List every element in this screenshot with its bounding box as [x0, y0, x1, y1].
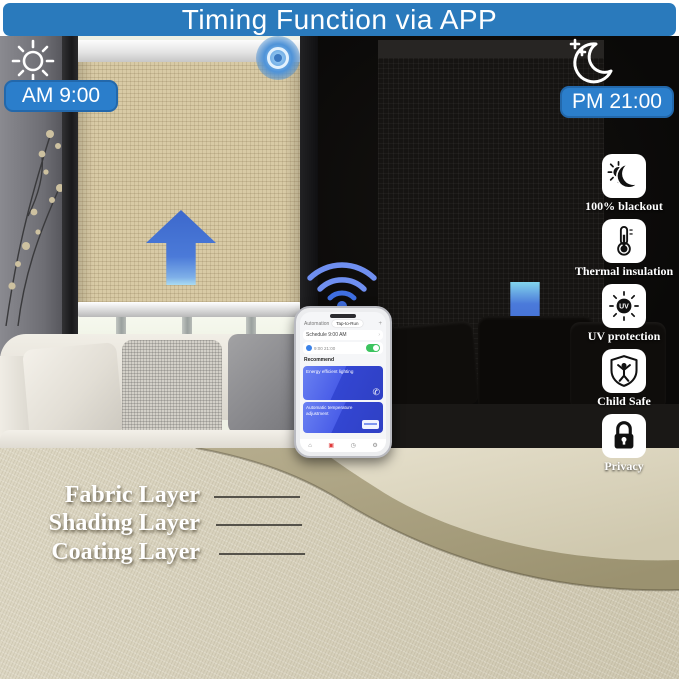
recommend-heading: Recommend — [304, 357, 382, 363]
thermal-icon — [602, 219, 646, 263]
feature-label: UV protection — [588, 329, 661, 344]
nav-settings-icon[interactable]: ⚙ — [372, 442, 377, 449]
banner: Timing Function via APP — [3, 3, 676, 36]
nav-scene-icon[interactable]: ▣ — [328, 442, 334, 449]
chevron-right-icon: › — [378, 332, 380, 338]
feature-label: Privacy — [604, 459, 643, 474]
phone-glyph-icon: ✆ — [372, 387, 380, 398]
svg-text:UV: UV — [619, 304, 629, 311]
layer-label-coating: Coating Layer — [0, 539, 200, 566]
pillow-textured — [122, 340, 222, 440]
feature-uv: UV UV protection — [588, 284, 661, 344]
feature-label: Thermal insulation — [575, 264, 673, 279]
layer-label-shading: Shading Layer — [0, 510, 200, 537]
feature-label: Child Safe — [597, 394, 651, 409]
recommend-card-temperature[interactable]: Automatic temperature adjustment — [303, 402, 383, 433]
phone-speaker — [330, 314, 356, 318]
clock-dot-icon — [306, 345, 312, 351]
feature-label: 100% blackout — [585, 199, 663, 214]
night-time-badge: PM 21:00 — [560, 86, 674, 118]
tab-tap-to-run[interactable]: Tap-to-Run — [332, 320, 362, 327]
pillow-black — [381, 320, 480, 412]
pillow-white — [22, 342, 124, 442]
layer-label-fabric: Fabric Layer — [0, 482, 200, 509]
night-time-label: PM 21:00 — [572, 90, 662, 114]
wifi-icon — [300, 250, 384, 312]
feature-child-safe: Child Safe — [597, 349, 651, 409]
bottom-nav: ⌂ ▣ ◷ ⚙ — [300, 439, 386, 452]
times-row[interactable]: 9:00 21:00 — [303, 342, 383, 354]
blind-bottom-bar — [78, 302, 300, 317]
day-time-badge: AM 9:00 — [4, 80, 118, 112]
recommend-card-lighting[interactable]: Energy efficient lighting ✆ — [303, 366, 383, 400]
layer-line — [219, 553, 305, 555]
fabric-swatch-section: Fabric Layer Shading Layer Coating Layer — [0, 448, 679, 679]
branch-decor — [0, 96, 70, 326]
feature-list: 100% blackout Thermal insulation — [570, 154, 678, 479]
layer-line — [216, 524, 302, 526]
app-header: Automation Tap-to-Run + — [300, 319, 386, 328]
panel-graphic — [362, 420, 379, 429]
sun-icon — [10, 38, 56, 84]
add-automation-button[interactable]: + — [378, 321, 382, 327]
card-title: Automatic temperature adjustment — [306, 405, 358, 416]
schedule-toggle[interactable] — [366, 344, 380, 352]
privacy-icon — [602, 414, 646, 458]
uv-icon: UV — [602, 284, 646, 328]
card-title: Energy efficient lighting — [306, 369, 358, 375]
child-safe-icon — [602, 349, 646, 393]
feature-thermal: Thermal insulation — [575, 219, 673, 279]
sofa-seat — [0, 430, 318, 448]
schedule-row-label: Schedule 9:00 AM — [306, 332, 347, 338]
moon-icon — [562, 36, 616, 90]
smart-motor-indicator — [256, 36, 300, 80]
schedule-row[interactable]: Schedule 9:00 AM › — [303, 330, 383, 340]
layer-line — [214, 496, 300, 498]
app-screen: Automation Tap-to-Run + Schedule 9:00 AM… — [300, 312, 386, 452]
feature-privacy: Privacy — [602, 414, 646, 474]
product-infographic: Timing Function via APP — [0, 0, 679, 679]
nav-smart-icon[interactable]: ◷ — [351, 442, 356, 449]
blackout-icon — [602, 154, 646, 198]
day-scene: AM 9:00 — [0, 36, 318, 448]
nav-home-icon[interactable]: ⌂ — [308, 443, 312, 449]
app-header-title: Automation — [304, 321, 329, 327]
banner-title: Timing Function via APP — [182, 4, 497, 36]
feature-blackout: 100% blackout — [585, 154, 663, 214]
smartphone: Automation Tap-to-Run + Schedule 9:00 AM… — [294, 306, 392, 458]
times-label: 9:00 21:00 — [314, 346, 335, 351]
day-time-label: AM 9:00 — [22, 84, 100, 108]
